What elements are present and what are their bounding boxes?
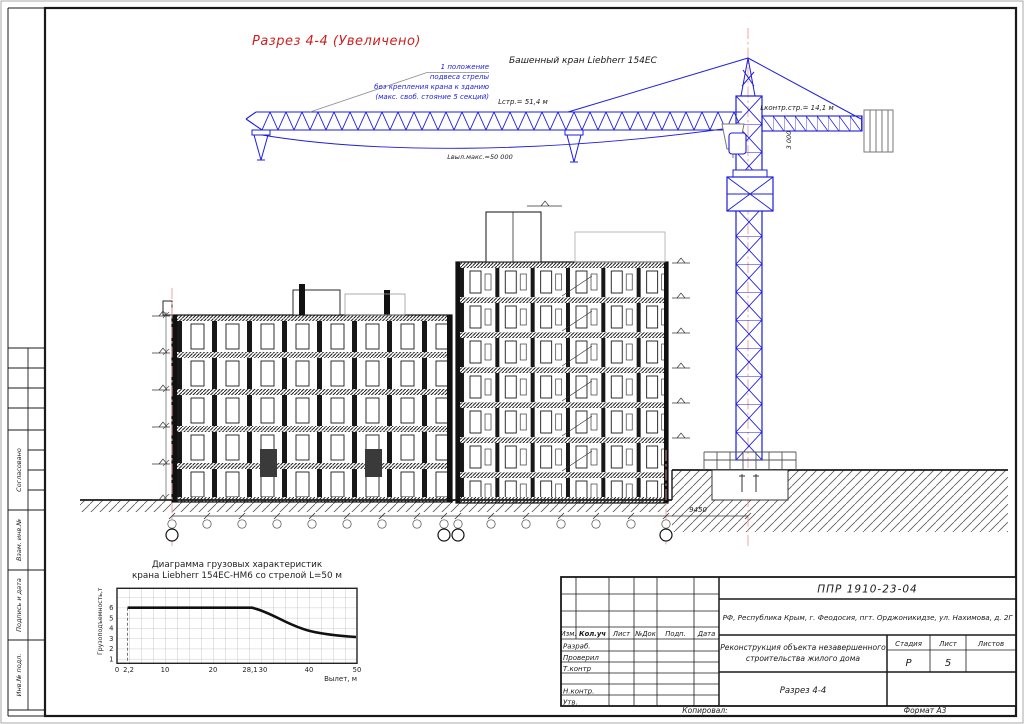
title-block: Изм. Кол.уч Лист №Док Подп. Дата Разраб.… (561, 577, 1017, 707)
col-koluch: Кол.уч (579, 630, 606, 638)
jib-length-label: Lстр.= 51,4 м (498, 98, 548, 106)
blue-annotation: 1 положение подвеса стрелы без крепления… (310, 63, 489, 112)
x-tick-20: 20 (209, 666, 218, 674)
chart-title-line-1: Диаграмма грузовых характеристик (152, 560, 323, 570)
y-tick-2: 2 (109, 645, 113, 653)
col-dok: №Док (634, 630, 657, 638)
frame-footer: Копировал: Формат А3 (682, 706, 946, 715)
podpis-data-label: Подпись и дата (15, 578, 23, 632)
row-tkontr: Т.контр (563, 665, 592, 673)
chart-y-label: Грузоподъемность,т (97, 587, 104, 655)
y-tick-4: 4 (109, 625, 113, 633)
kopiroval-label: Копировал: (682, 706, 727, 715)
col-podp: Подп. (665, 630, 686, 638)
stage-label: Стадия (895, 640, 922, 648)
y-tick-1: 1 (109, 656, 113, 664)
row-utv: Утв. (563, 699, 578, 707)
col-list: Лист (612, 630, 631, 638)
counterjib-length-label: Lконтр.стр.= 14,1 м (760, 104, 834, 112)
y-tick-5: 5 (109, 615, 113, 623)
section-title: Разрез 4-4 (Увеличено) (252, 34, 421, 49)
x-tick-40: 40 (305, 666, 314, 674)
project-name-line-1: Реконструкция объекта незавершенного (720, 643, 886, 652)
vzam-inv-label: Взам. инв.№ (15, 519, 23, 561)
load-chart: Диаграмма грузовых характеристик крана L… (97, 560, 361, 683)
annotation-line-2: подвеса стрелы (430, 73, 490, 81)
max-outreach-label: Lвыл.макс.=50 000 (447, 153, 512, 161)
inv-podl-label: Инв.№ подл. (15, 654, 23, 697)
left-dim-stack (163, 312, 169, 500)
chart-y-ticks: 6 5 4 3 2 1 (109, 604, 113, 663)
sheet-value: 5 (945, 658, 951, 669)
y-tick-6: 6 (109, 604, 113, 612)
y-tick-3: 3 (109, 635, 113, 643)
crane-name-label: Башенный кран Liebherr 154EC (509, 56, 658, 66)
building-section (152, 201, 690, 503)
drawing-sheet: Согласовано Взам. инв.№ Подпись и дата И… (0, 0, 1024, 724)
object-location: РФ, Республика Крым, г. Феодосия, пгт. О… (723, 613, 1014, 622)
counterweight (864, 110, 893, 152)
annotation-line-1: 1 положение (441, 63, 489, 71)
row-razrab: Разраб. (563, 643, 591, 651)
col-data: Дата (697, 630, 716, 638)
x-tick-50: 50 (353, 666, 362, 674)
x-tick-10: 10 (161, 666, 170, 674)
doc-number: ППР 1910-23-04 (817, 584, 917, 596)
soglasovano-label: Согласовано (15, 448, 23, 492)
axis-circles-small (168, 520, 670, 528)
gost-side-labels: Согласовано Взам. инв.№ Подпись и дата И… (15, 448, 23, 696)
x-tick-30: 30 (259, 666, 268, 674)
chart-x-label: Вылет, м (324, 675, 357, 683)
chart-x-ticks: 0 2,2 10 20 28,1 30 40 50 (115, 666, 361, 674)
sheet-label: Лист (938, 640, 958, 648)
sheet-name: Разрез 4-4 (780, 686, 827, 696)
sheets-label: Листов (977, 640, 1004, 648)
x-tick-28-1: 28,1 (242, 666, 257, 674)
axis-circles-main (166, 529, 672, 541)
row-nkontr: Н.контр. (563, 688, 594, 696)
project-name-line-2: строительства жилого дома (746, 654, 861, 663)
stage-value: Р (905, 658, 912, 669)
cad-canvas: Согласовано Взам. инв.№ Подпись и дата И… (0, 0, 1024, 724)
tower-dim-label: 3 000 (785, 131, 793, 150)
gost-side-column (8, 348, 45, 710)
format-label: Формат А3 (904, 706, 947, 715)
crane-offset-dim: 9450 (689, 506, 707, 514)
chart-title-line-2: крана Liebherr 154EC-HM6 со стрелой L=50… (132, 571, 342, 581)
x-tick-0: 0 (115, 666, 119, 674)
col-izm: Изм. (561, 630, 577, 638)
annotation-line-4: (макс. своб. стояние 5 секций) (375, 93, 489, 101)
row-proveril: Проверил (563, 654, 599, 662)
annotation-line-3: без крепления крана к зданию (374, 83, 489, 91)
x-tick-2-2: 2,2 (123, 666, 134, 674)
